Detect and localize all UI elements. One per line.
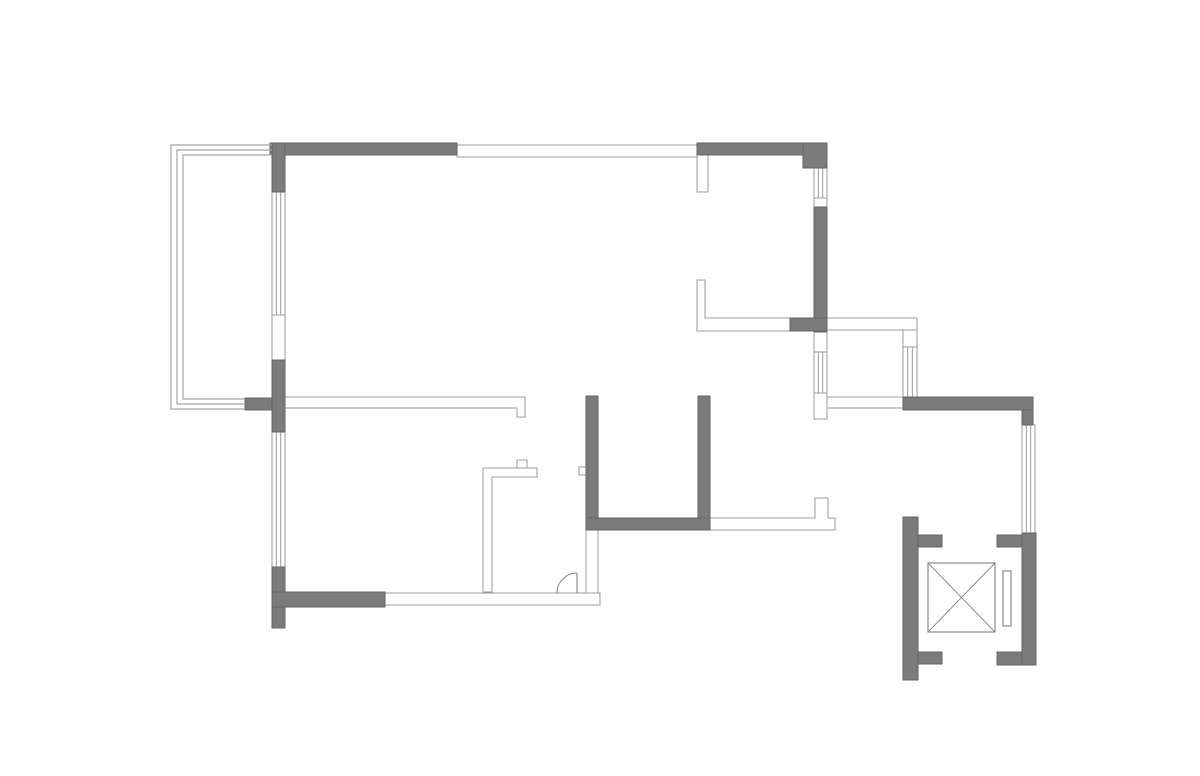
- wall-bottom-right-thin: [586, 530, 598, 593]
- floor-plan-svg: [0, 0, 1200, 776]
- wall-bay-left-lower-tab: [814, 393, 827, 419]
- balcony-glazing-middle: [177, 150, 272, 404]
- balcony-glazing-inner: [183, 155, 272, 399]
- wall-lift-left-bottom-arm: [918, 652, 942, 664]
- wall-bay-top: [827, 318, 917, 330]
- wall-top-stub: [697, 155, 708, 192]
- wall-bath-right: [698, 396, 710, 518]
- wall-bottom-thin: [385, 593, 600, 605]
- wall-right-junction: [790, 318, 827, 331]
- wall-top-right-corner: [803, 143, 827, 168]
- window-left-upper: [272, 192, 285, 315]
- wall-bath-bottom: [586, 518, 710, 530]
- door-swing-arc: [557, 573, 577, 593]
- wall-living-divider: [285, 397, 525, 417]
- elevator-counterweight: [1003, 571, 1011, 626]
- wall-bay-bottom: [903, 397, 1033, 410]
- wall-balcony-opening: [272, 315, 285, 360]
- wall-top-window-band: [457, 145, 697, 157]
- wall-lift-right-bar: [1022, 533, 1036, 665]
- wall-bay-bottom-white: [827, 397, 903, 408]
- wall-bath-left: [586, 396, 598, 530]
- wall-left-cross-arm: [245, 398, 272, 410]
- window-bay-left: [814, 352, 827, 393]
- wall-bath-left-tab: [579, 467, 586, 475]
- wall-lift-left-top-arm: [918, 535, 942, 547]
- wall-closet-L: [483, 468, 537, 592]
- wall-right-upper: [814, 207, 827, 332]
- wall-left-cross: [272, 360, 285, 432]
- window-left-lower: [272, 432, 285, 567]
- wall-entry-notched: [710, 498, 835, 530]
- wall-closet-bump: [517, 460, 527, 468]
- floor-plan-page: [0, 0, 1200, 776]
- wall-lift-left-bar: [903, 517, 918, 680]
- wall-top-left: [270, 143, 457, 155]
- balcony-glazing-outer: [171, 145, 272, 409]
- wall-bay-bottom-corner: [1022, 410, 1033, 425]
- wall-balcony-corner: [272, 143, 285, 192]
- window-right-lower: [1022, 425, 1035, 533]
- wall-bay-left-upper: [814, 332, 827, 352]
- window-right-upper: [814, 168, 827, 198]
- window-bay-right: [903, 347, 917, 397]
- wall-interior-L: [697, 280, 790, 331]
- wall-bottom-gray: [272, 592, 385, 607]
- wall-bay-right-upper: [903, 330, 917, 347]
- wall-lift-right-bottom-arm: [997, 652, 1022, 665]
- wall-right-upper-gap: [814, 198, 827, 207]
- wall-lift-right-top-arm: [997, 535, 1022, 547]
